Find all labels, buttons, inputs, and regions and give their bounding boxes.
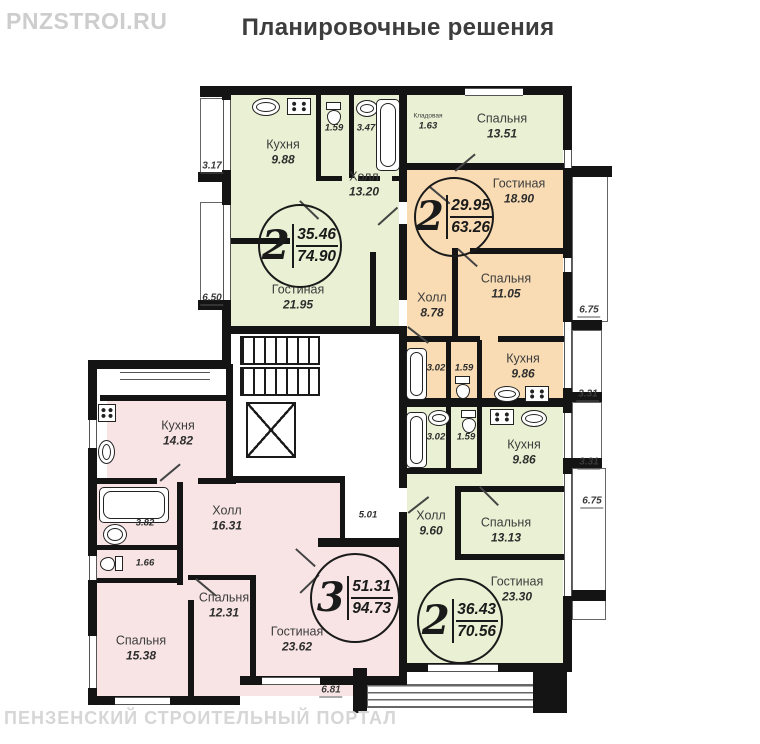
living-area: 51.31 [351,578,393,599]
window [89,556,97,580]
toilet-tank [115,556,123,571]
wall [97,578,179,583]
staircase-flight [240,336,320,365]
floor-plan-page: PNZSTROI.RU Планировочные решения ПЕНЗЕН… [0,0,760,744]
wall [563,86,572,150]
dimension-label: 6.81 [319,685,342,698]
dimension-label: 6.50 [200,293,223,306]
wall [100,395,232,401]
sink-icon [428,410,450,426]
wall [222,300,231,368]
room-label-wc: 1.66 [136,557,155,568]
window [564,150,572,168]
rooms-count: 2 [422,601,450,641]
area-fraction: 29.95 63.26 [450,197,492,237]
wall-stub [533,668,567,713]
sink-icon [103,524,127,545]
wall [231,476,345,483]
room-label-kitchen: Кухня 9.86 [506,351,539,380]
window [564,474,572,596]
sink-bowl [432,414,446,422]
elevator-shaft [246,402,296,458]
toilet-tank [461,410,476,418]
rooms-count: 2 [262,226,290,266]
bathtub-icon [406,348,427,400]
wall [316,176,342,181]
window [564,413,572,458]
toilet-icon [461,410,476,433]
room-label-wc: 1.59 [455,362,474,373]
apartment-summary-circle: 2 35.46 74.90 [258,204,342,288]
wall [498,336,572,342]
window [428,664,498,672]
window [223,205,231,300]
circle-divider [292,224,295,268]
wall [563,458,572,474]
room-label-kitchen: Кухня 14.82 [161,418,194,447]
bathtub-inner [410,352,423,396]
wall [402,468,482,474]
wall [340,482,345,540]
room-label-kitchen: Кухня 9.88 [266,137,299,166]
balcony [572,330,602,396]
wall-stub [572,320,602,330]
sink-icon [252,98,280,116]
living-area: 36.43 [456,601,498,622]
bathtub-icon [376,99,400,171]
room-label-wc: 1.59 [325,122,344,133]
room-label-bedroom: Спальня 13.13 [481,515,531,544]
wall [392,176,402,181]
room-label-living: Гостиная 23.62 [271,624,323,653]
stove-icon [525,386,549,402]
dimension-label: 3.31 [576,389,599,402]
room-label-hall: Холл 16.31 [212,503,242,532]
watermark-portal: ПЕНЗЕНСКИЙ СТРОИТЕЛЬНЫЙ ПОРТАЛ [4,708,397,729]
room-label-bath: 3.02 [427,362,446,373]
room-label-hall: Холл 13.20 [349,169,379,198]
window [262,677,320,685]
entrance-steps [367,684,535,708]
wall-stub [353,668,367,713]
wall-stub [572,166,612,177]
sink-bowl [102,444,111,460]
room-label-bath: 3.02 [427,431,446,442]
sink-bowl [360,104,374,113]
wall [452,248,458,336]
window [564,322,572,388]
apartment-summary-circle: 2 36.43 70.56 [417,578,503,664]
living-area: 35.46 [296,226,338,247]
wall [188,600,194,700]
window [89,636,97,688]
bathtub-inner [380,103,396,167]
wall [399,512,407,668]
toilet-tank [455,376,470,384]
wall-stub [198,172,229,182]
dimension-label: 3.17 [200,161,223,174]
apartment-summary-circle: 3 51.31 94.73 [310,553,400,643]
sink-bowl [107,528,123,541]
wall [563,272,572,322]
sink-bowl [256,102,276,112]
wall [177,482,183,585]
stove-icon [490,409,514,425]
window [564,258,572,272]
room-label-living: Гостиная 23.30 [491,574,543,603]
wall [97,545,179,550]
room-label-living: Гостиная 18.90 [493,176,545,205]
room-label-bedroom: Спальня 11.05 [481,271,531,300]
wall [88,580,97,636]
wall-stub [200,86,228,97]
wall [88,360,97,420]
wall [455,486,572,492]
sink-icon [98,440,115,464]
wall [316,92,321,178]
wall [470,248,572,254]
sink-icon [356,100,378,117]
wall [563,596,572,672]
toilet-bowl [100,557,115,571]
wall [446,340,451,400]
wall [399,224,407,300]
wall [250,575,256,676]
living-area: 29.95 [450,197,492,218]
wall [318,538,406,547]
wall [227,326,407,334]
room-label-storage: Кладовая 1.63 [413,112,442,131]
apartment-summary-circle: 2 29.95 63.26 [414,177,494,257]
room-label-bedroom: Спальня 13.51 [477,111,527,140]
wall [477,340,482,400]
toilet-tank [326,102,341,110]
circle-divider [446,195,448,239]
room-label-bedroom: Спальня 15.38 [116,633,166,662]
dimension-label: 3.31 [577,457,600,470]
total-area: 63.26 [450,218,492,237]
window [223,100,231,170]
wall [402,336,480,342]
wall [455,554,572,560]
sink-bowl [498,390,516,398]
wall [88,360,231,369]
stove-icon [287,98,311,115]
room-label-hall: Холл 9.60 [416,508,445,537]
room-label-bath: 3.47 [357,122,376,133]
bathtub-inner [103,491,165,519]
watermark-site: PNZSTROI.RU [6,8,167,35]
staircase-flight [240,367,320,396]
stove-icon [98,404,116,422]
wall [402,163,572,170]
toilet-bowl [456,384,470,399]
room-label-bath: 3.82 [136,517,155,528]
circle-divider [452,599,455,643]
room-label-corridor: 5.01 [359,509,378,520]
room-label-wc: 1.59 [457,431,476,442]
balcony [572,402,602,464]
wall [399,92,407,202]
page-title: Планировочные решения [242,14,555,42]
bathtub-inner [410,416,423,464]
toilet-icon [100,556,123,571]
wall [226,364,233,482]
window [465,88,523,96]
wall-stub [572,590,606,601]
circle-divider [347,576,350,620]
room-label-bedroom: Спальня 12.31 [199,590,249,619]
wall [455,486,461,556]
area-fraction: 51.31 94.73 [351,578,393,618]
window [115,697,170,705]
sink-bowl [525,414,543,423]
total-area: 70.56 [456,622,498,641]
bathtub-icon [406,412,427,468]
toilet-icon [455,376,470,399]
wall [88,448,97,556]
rooms-count: 2 [416,197,444,237]
wall [477,407,482,470]
wall [349,92,354,178]
dimension-label: 6.75 [577,305,600,318]
room-label-kitchen: Кухня 9.86 [507,437,540,466]
area-fraction: 36.43 70.56 [456,601,498,641]
room-label-hall: Холл 8.78 [417,290,446,319]
sink-icon [494,386,520,402]
total-area: 74.90 [296,247,338,266]
area-fraction: 35.46 74.90 [296,226,338,266]
window [120,372,210,380]
wall [95,478,157,484]
balcony [572,170,608,322]
bathtub-icon [99,487,169,523]
rooms-count: 3 [317,578,345,618]
window [89,420,97,448]
dimension-label: 6.75 [580,496,603,509]
total-area: 94.73 [351,599,393,618]
sink-icon [521,410,547,427]
wall [370,252,376,328]
wall [563,168,572,258]
